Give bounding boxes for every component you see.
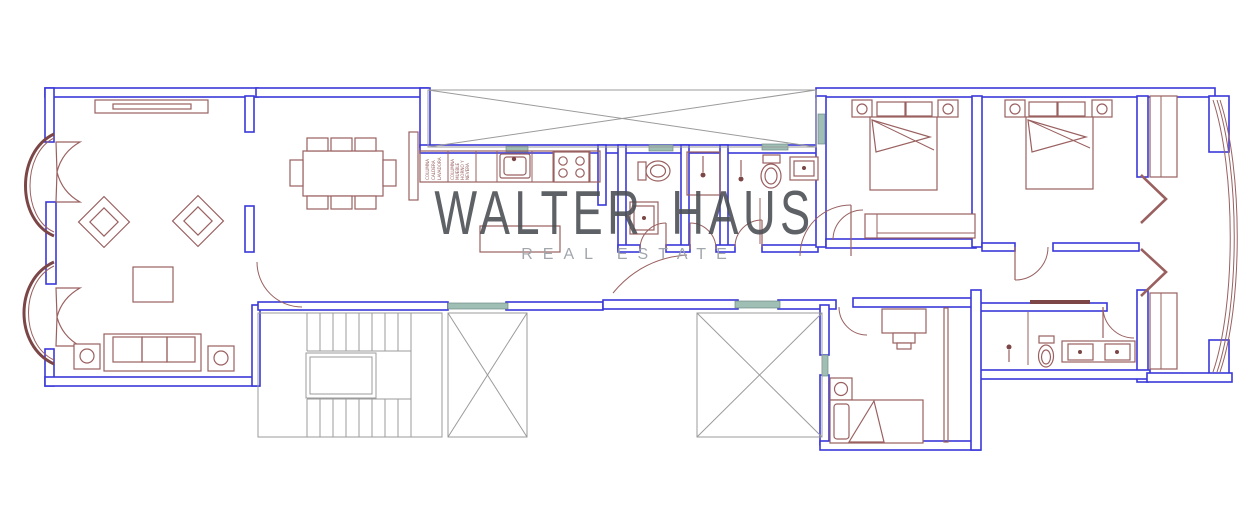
kitchen-column2-label: NEVERA: [465, 163, 470, 180]
bedroom1-door-arc: [833, 210, 863, 240]
nightstand: [938, 100, 958, 117]
kitchen-island: [480, 226, 560, 252]
wall-smallbed-right: [971, 290, 981, 450]
wall-divider-living-dining-mid: [245, 206, 254, 252]
wall-bath-bottom-2: [666, 245, 690, 252]
wall-top-dining: [256, 88, 428, 97]
living-room: [74, 100, 234, 371]
window-bedroom1: [818, 114, 825, 144]
sofa: [104, 334, 201, 371]
wall-vestibule: [252, 305, 260, 386]
wall-closet-top: [1137, 96, 1148, 177]
smallbed-door-arc: [839, 307, 867, 335]
bedroom-1: [852, 100, 975, 238]
window-bathA: [649, 145, 673, 151]
toilet: [638, 161, 670, 181]
desk: [882, 309, 926, 333]
bay-door-leaf: [56, 288, 80, 317]
shower-head: [739, 177, 744, 182]
basin-drain: [802, 166, 806, 170]
toilet-tank: [763, 155, 780, 163]
kitchen-partition-wall: [409, 132, 418, 200]
shower-room: [687, 152, 720, 195]
wall-bathroom2-bottom: [975, 370, 1150, 379]
bed-pillow: [834, 404, 849, 439]
wall-bath-bottom-1: [618, 245, 640, 252]
bathC-door-arc: [735, 220, 762, 247]
wall-divider-living-dining-top: [245, 96, 254, 132]
dining-chair: [290, 160, 303, 186]
bedroom-2: [1005, 100, 1112, 189]
closet-top: [1150, 96, 1177, 177]
wall-living-bottom: [45, 377, 259, 386]
desk-chair: [893, 333, 915, 343]
wall-left-mid: [46, 202, 56, 284]
armchair: [173, 196, 224, 247]
bay-door-leaf: [56, 317, 80, 346]
wall-corridor-bottom-1: [258, 302, 448, 310]
dining-room: [290, 138, 396, 209]
window-smallbed: [822, 355, 828, 376]
side-table: [208, 346, 234, 371]
toilet: [1039, 336, 1055, 367]
closet-open-door-icon: [1141, 249, 1166, 296]
side-table-top: [208, 346, 234, 371]
entry-door-arc: [257, 262, 302, 307]
dining-chair: [383, 160, 396, 186]
kitchen-column1-label: LAVADORA: [437, 157, 442, 180]
wall-kitchen-right: [598, 145, 606, 205]
wall-bedroom1-bottom: [826, 239, 976, 248]
wall-bathBC-divider: [720, 145, 728, 250]
wall-bathroom2-top: [980, 303, 1107, 311]
headboard-cushion: [877, 102, 905, 116]
nightstand-top: [830, 378, 852, 400]
armchair-outer: [79, 197, 130, 248]
wardrobe-bench: [865, 214, 975, 238]
washbasin: [790, 157, 818, 180]
bay-door-leaf: [56, 172, 80, 202]
patio-2: [697, 313, 822, 437]
wall-smallbed-top: [853, 298, 975, 307]
dining-chair: [331, 138, 352, 151]
small-bedroom: [830, 308, 948, 443]
wall-top-left: [45, 88, 258, 97]
vanity-drain: [1078, 350, 1082, 354]
wardrobe-edge: [944, 308, 948, 442]
armchair-outer: [173, 196, 224, 247]
dining-chair: [355, 196, 376, 209]
toilet-bowl: [646, 161, 670, 181]
nightstand: [852, 100, 872, 117]
side-table: [74, 344, 100, 369]
side-table-top: [74, 344, 100, 369]
wall-bathAB-divider: [681, 145, 689, 250]
nightstand: [1005, 100, 1025, 117]
sink-faucet: [512, 157, 516, 161]
elevator: [306, 353, 376, 398]
dining-chair: [307, 196, 328, 209]
window-corridor-1: [448, 303, 508, 309]
basin-drain: [642, 216, 646, 220]
dining-chair: [355, 138, 376, 151]
stair-enclosure: [258, 313, 442, 437]
shower-head: [1007, 345, 1012, 350]
staircase: [258, 313, 442, 437]
shower-screen: [1030, 300, 1090, 304]
floor-plan-page: COLUMNA CALDERA LAVADORA COLUMNA MUEBLE …: [0, 0, 1248, 520]
dining-chair: [331, 196, 352, 209]
wall-bathA-left: [618, 145, 626, 250]
stove: [554, 152, 589, 182]
wall-outer-bottom-right: [1147, 373, 1232, 382]
closet-bottom: [1150, 293, 1177, 369]
bay-door-leaf: [56, 142, 80, 172]
nightstand: [1092, 100, 1112, 117]
vanity-drain: [1115, 350, 1119, 354]
patio-1: [448, 313, 527, 437]
headboard-cushion: [906, 102, 932, 116]
double-vanity: [1062, 341, 1135, 362]
wall-bath-bottom-3: [716, 245, 735, 252]
doors: [257, 205, 1134, 338]
toilet: [761, 155, 781, 188]
armchair: [79, 197, 130, 248]
kitchen-sink: [500, 154, 530, 178]
coffee-table: [133, 267, 173, 302]
stair-treads-upper: [307, 313, 411, 351]
toilet-tank: [1039, 336, 1054, 343]
courtyard-top: [428, 90, 816, 147]
kitchen-column1-label: COLUMNA: [425, 159, 430, 180]
dining-table: [303, 151, 383, 196]
wall-corridor-bottom-3: [603, 300, 738, 309]
wall-corridor-bottom-2: [506, 302, 603, 310]
elevator-car: [310, 357, 372, 394]
shower-head: [701, 173, 706, 178]
headboard-cushion: [1058, 102, 1085, 116]
floor-plan-svg: COLUMNA CALDERA LAVADORA COLUMNA MUEBLE …: [0, 0, 1248, 520]
wall-smallbed-left-b: [820, 375, 829, 445]
kitchen-column1-label: CALDERA: [431, 160, 436, 180]
bedroom2-door-arc: [1015, 247, 1048, 280]
wall-bedroom2-bottom-b: [1053, 243, 1139, 251]
wall-closet-bottom: [1137, 290, 1148, 382]
corridor-door-arc: [613, 255, 687, 293]
nightstand: [830, 378, 852, 400]
headboard-cushion: [1029, 102, 1057, 116]
toilet-tank: [638, 162, 646, 180]
desk-chair-seat: [897, 343, 911, 349]
wardrobe-outer: [865, 214, 975, 238]
wall-bath-bottom-4: [762, 245, 818, 252]
wall-bedroom2-bottom-a: [982, 243, 1015, 251]
sofa-body: [104, 334, 201, 371]
washbasin: [630, 202, 658, 234]
dining-chair: [307, 138, 328, 151]
window-corridor-2: [735, 301, 780, 308]
shower-room-door-arc: [690, 223, 716, 249]
elevator-shaft: [306, 353, 376, 398]
closet-open-door-icon: [1141, 175, 1166, 223]
stove-body: [554, 152, 589, 182]
